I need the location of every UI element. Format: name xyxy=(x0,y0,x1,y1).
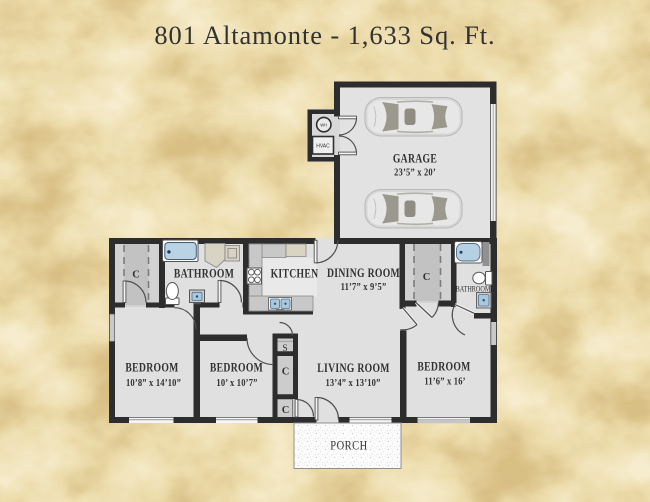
svg-text:S: S xyxy=(282,344,287,354)
svg-text:BATHROOM: BATHROOM xyxy=(174,267,234,280)
svg-text:C: C xyxy=(282,405,290,416)
svg-text:DINING ROOM: DINING ROOM xyxy=(327,267,400,280)
svg-text:BATHROOM: BATHROOM xyxy=(456,283,491,293)
svg-text:11’6” x 16’: 11’6” x 16’ xyxy=(424,377,465,388)
svg-text:C: C xyxy=(282,367,290,378)
svg-text:LIVING ROOM: LIVING ROOM xyxy=(317,362,389,375)
svg-text:10’ x 10’7”: 10’ x 10’7” xyxy=(216,378,257,389)
svg-text:23’5” x 20’: 23’5” x 20’ xyxy=(394,168,436,179)
svg-text:801 Altamonte - 1,633 Sq. Ft.: 801 Altamonte - 1,633 Sq. Ft. xyxy=(154,20,495,50)
svg-text:WH: WH xyxy=(320,122,327,127)
svg-text:10’8” x 14’10”: 10’8” x 14’10” xyxy=(126,378,181,389)
svg-text:C: C xyxy=(132,270,140,281)
svg-text:BEDROOM: BEDROOM xyxy=(125,361,178,374)
svg-text:KITCHEN: KITCHEN xyxy=(271,267,319,280)
svg-text:13’4” x 13’10”: 13’4” x 13’10” xyxy=(325,378,380,389)
svg-text:BEDROOM: BEDROOM xyxy=(417,360,470,373)
svg-text:C: C xyxy=(423,272,431,283)
svg-text:11’7” x 9’5”: 11’7” x 9’5” xyxy=(341,282,387,293)
svg-text:GARAGE: GARAGE xyxy=(393,152,437,165)
svg-text:PORCH: PORCH xyxy=(330,440,367,453)
svg-text:HVAC: HVAC xyxy=(316,144,330,150)
svg-text:BEDROOM: BEDROOM xyxy=(210,361,263,374)
